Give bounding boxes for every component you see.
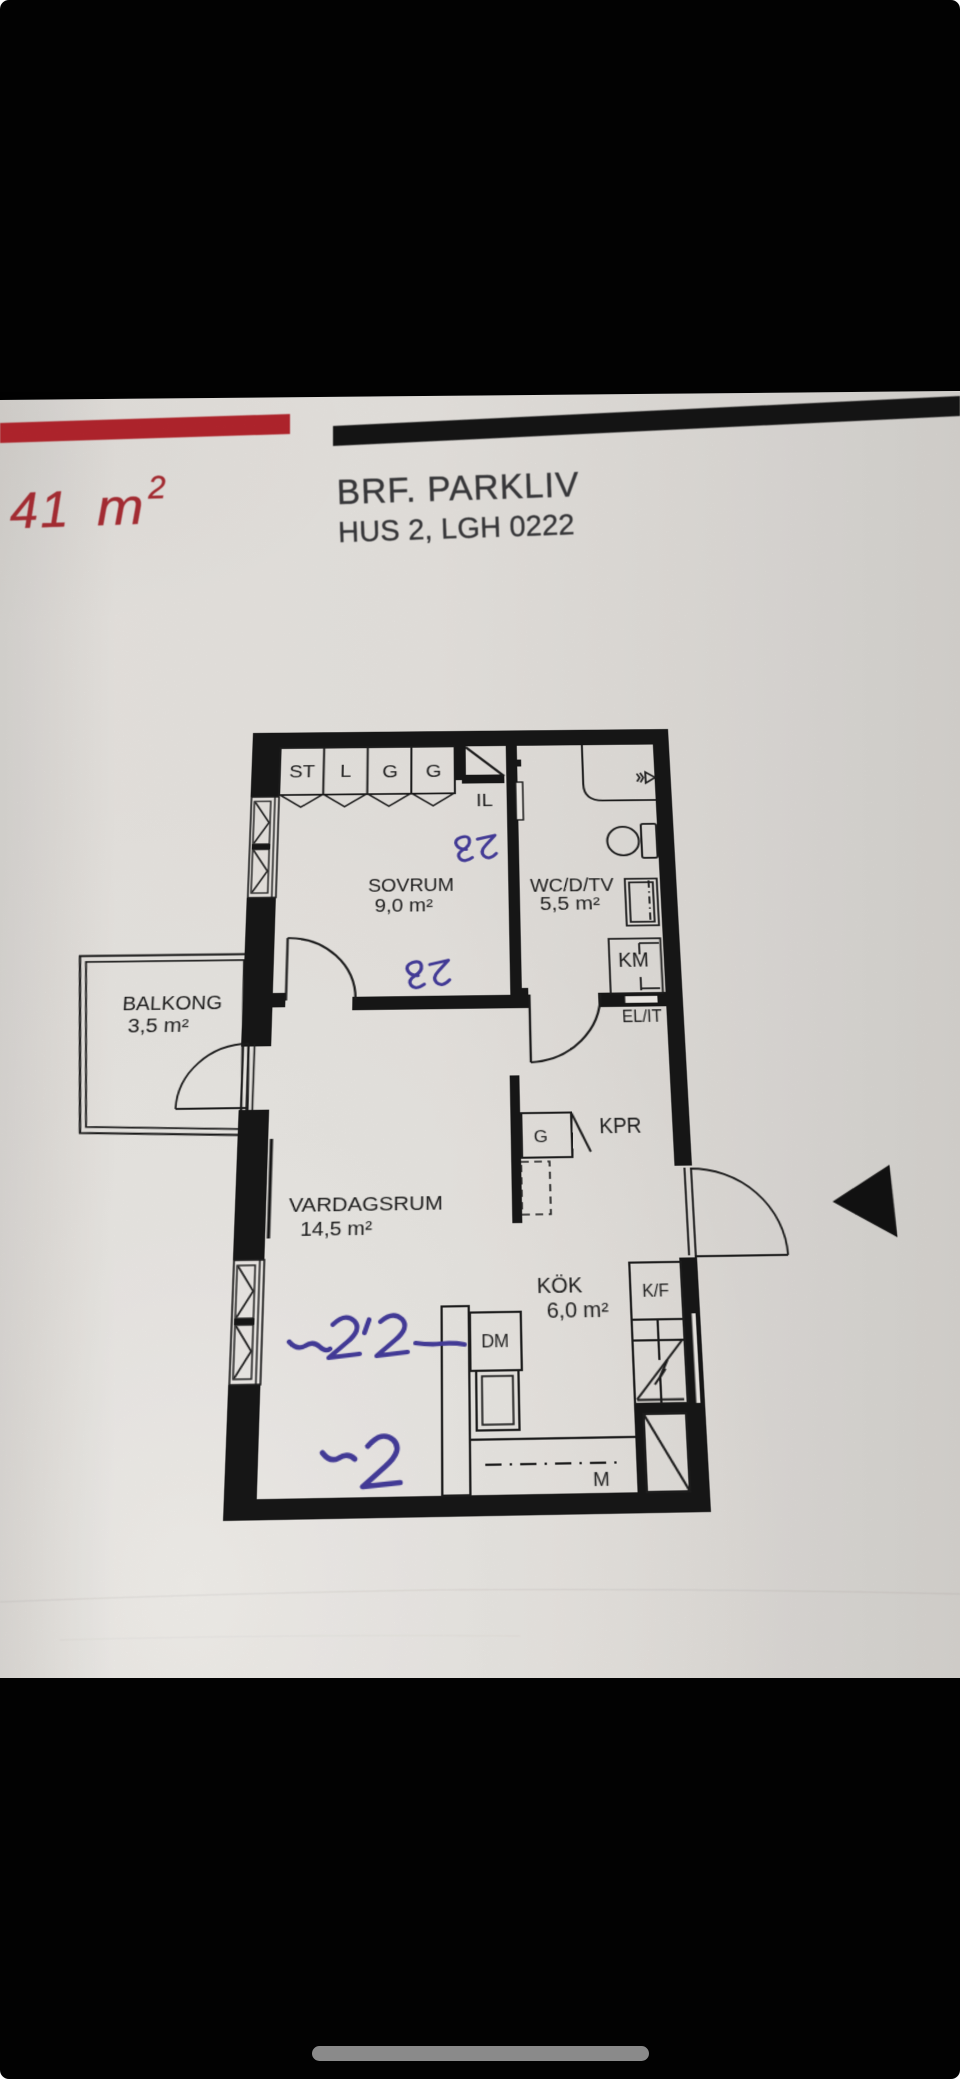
- svg-text:G: G: [382, 761, 398, 781]
- svg-text:3,5 m²: 3,5 m²: [127, 1015, 190, 1037]
- svg-text:G: G: [426, 761, 442, 781]
- svg-text:KÖK: KÖK: [537, 1274, 584, 1298]
- svg-text:ST: ST: [289, 761, 316, 781]
- svg-text:K/F: K/F: [642, 1282, 670, 1302]
- svg-text:14,5 m²: 14,5 m²: [300, 1218, 373, 1241]
- svg-text:DM: DM: [481, 1331, 509, 1353]
- svg-text:6,0 m²: 6,0 m²: [546, 1298, 609, 1323]
- svg-text:G: G: [533, 1128, 548, 1147]
- svg-text:5,5 m²: 5,5 m²: [540, 894, 601, 915]
- svg-text:L: L: [340, 761, 352, 781]
- svg-text:KM: KM: [618, 949, 650, 972]
- svg-text:KPR: KPR: [599, 1114, 642, 1139]
- svg-text:IL: IL: [476, 790, 494, 810]
- svg-text:9,0 m²: 9,0 m²: [374, 895, 433, 916]
- svg-text:VARDAGSRUM: VARDAGSRUM: [289, 1192, 443, 1217]
- svg-text:M: M: [593, 1468, 610, 1491]
- svg-text:BALKONG: BALKONG: [122, 991, 223, 1014]
- svg-text:WC/D/TV: WC/D/TV: [530, 874, 615, 896]
- svg-text:SOVRUM: SOVRUM: [368, 874, 454, 896]
- svg-text:EL/IT: EL/IT: [622, 1007, 663, 1026]
